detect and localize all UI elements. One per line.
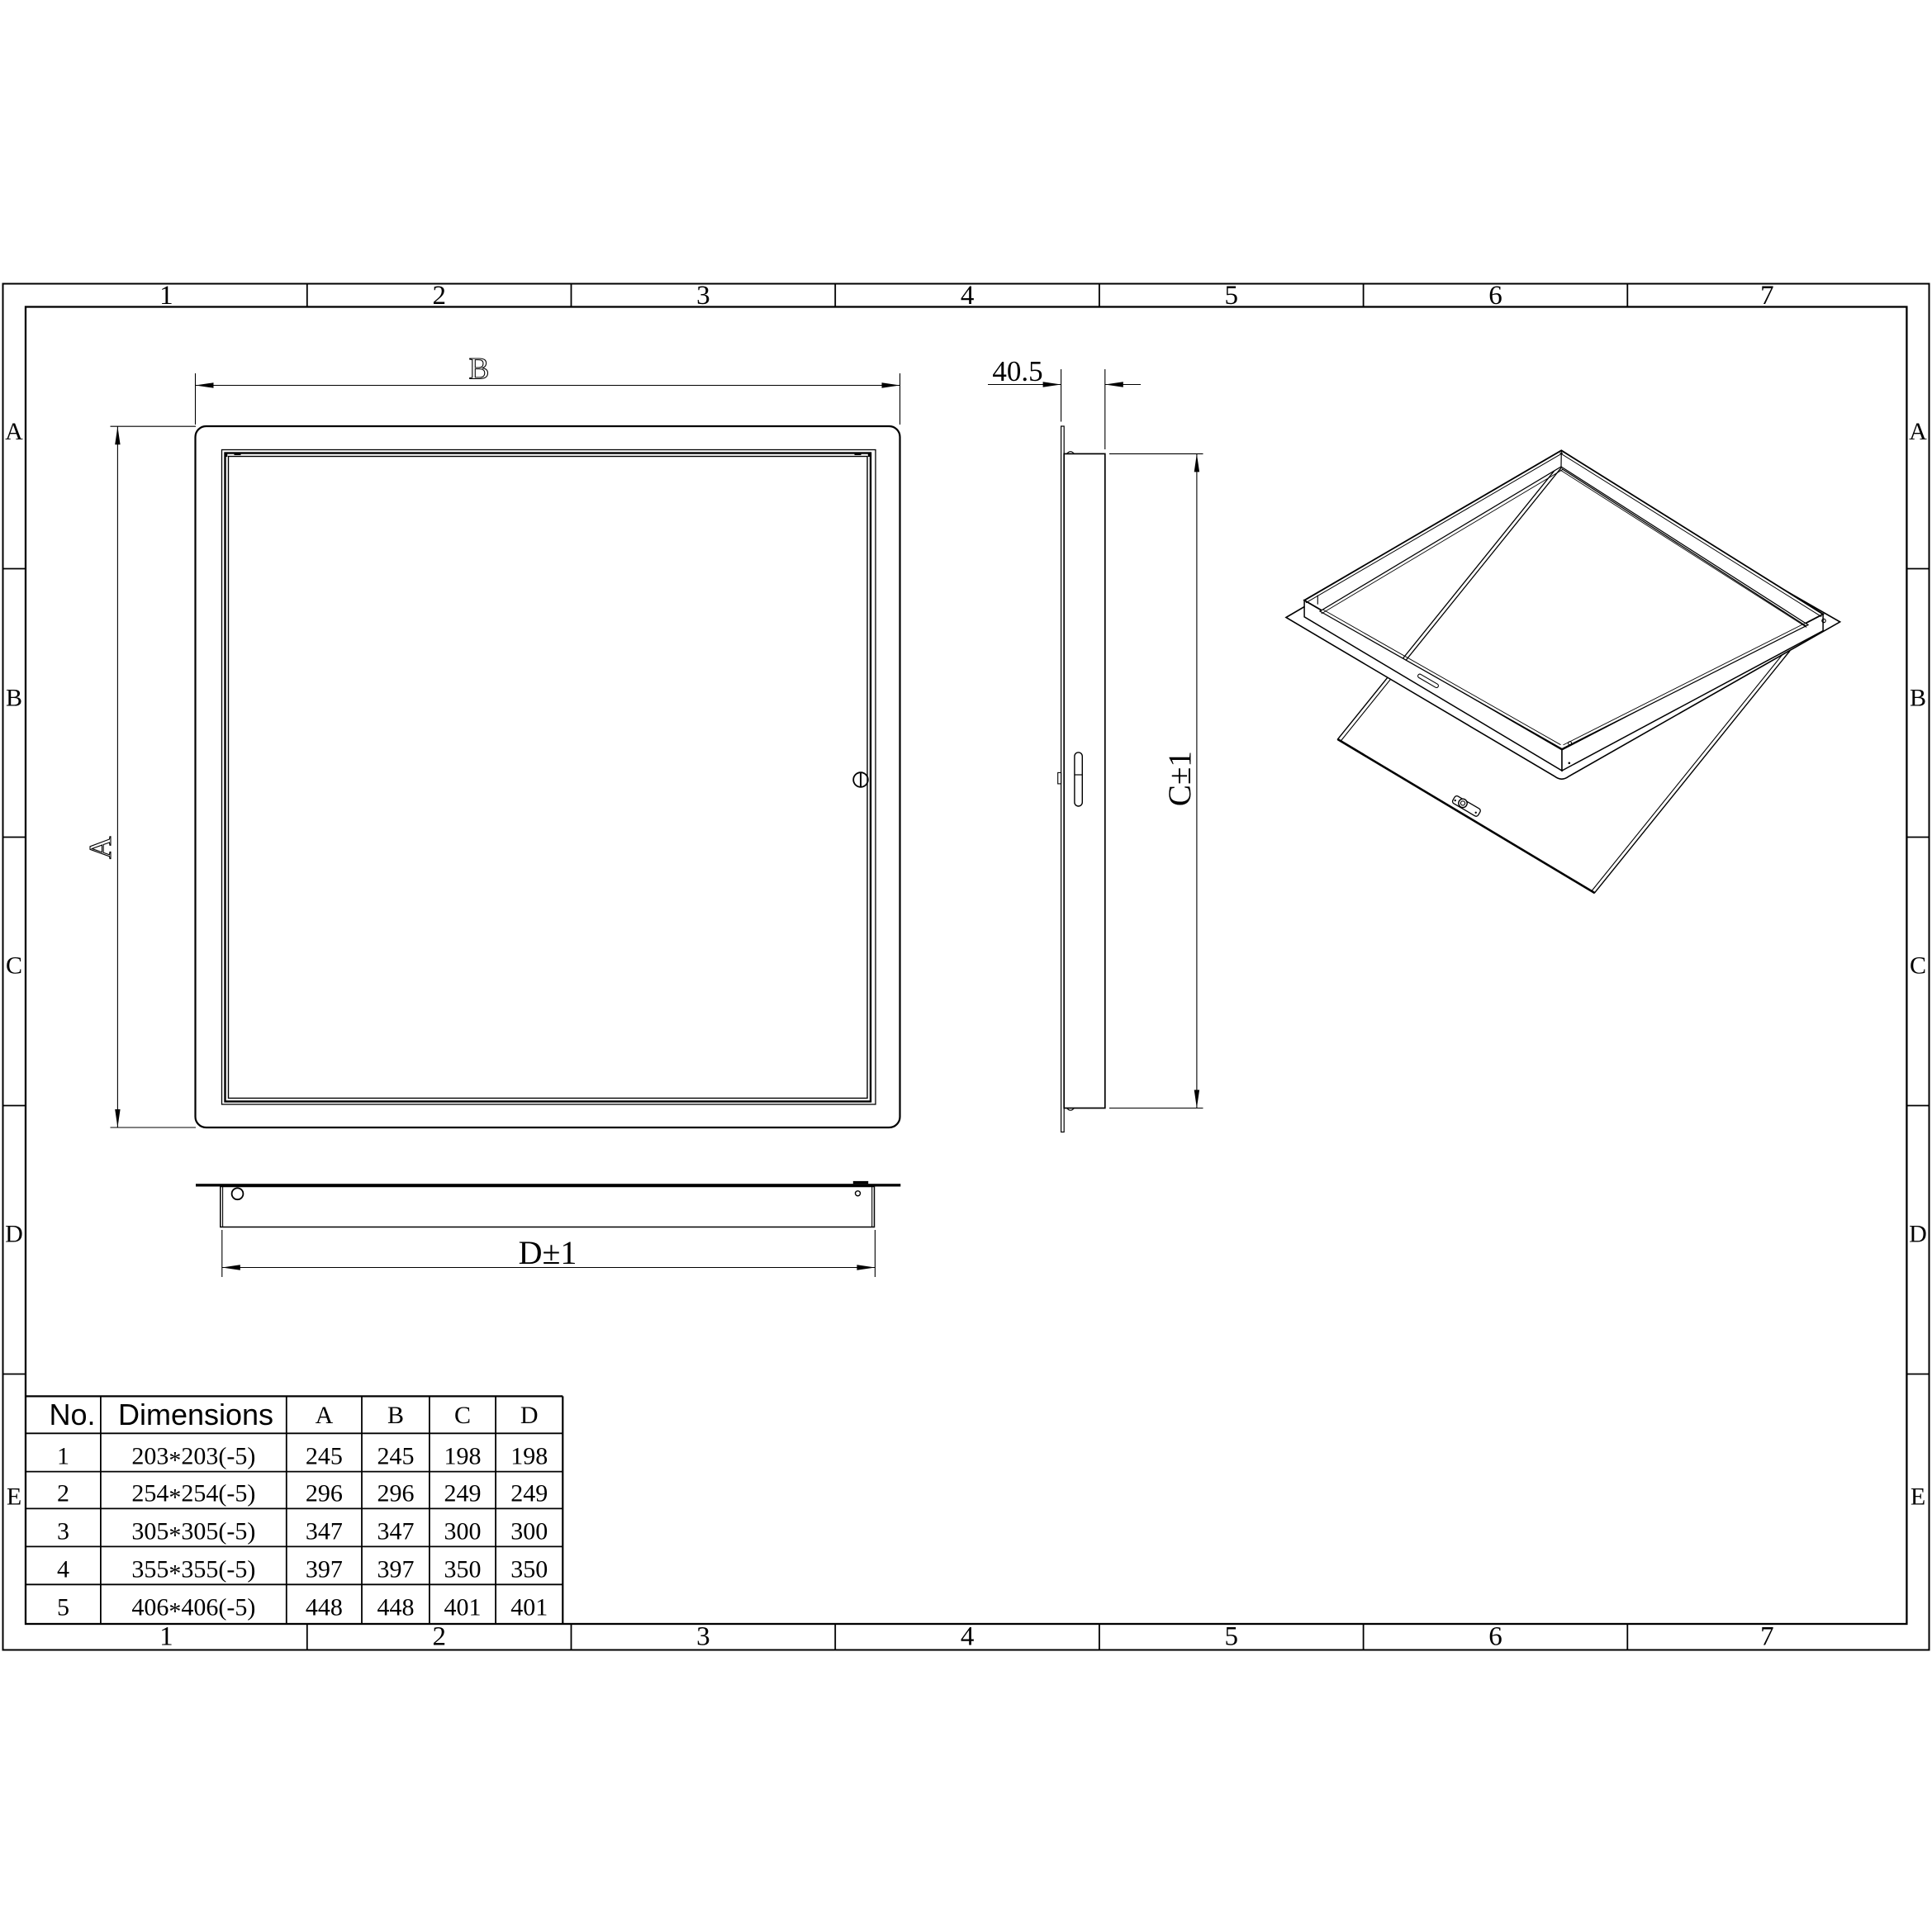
svg-text:3: 3 (696, 1622, 710, 1652)
svg-text:A: A (5, 418, 23, 445)
svg-text:350: 350 (510, 1556, 548, 1583)
svg-text:448: 448 (377, 1594, 415, 1621)
svg-text:198: 198 (510, 1443, 548, 1470)
svg-text:355*355(-5): 355*355(-5) (131, 1556, 255, 1588)
svg-text:249: 249 (510, 1480, 548, 1507)
svg-text:448: 448 (306, 1594, 343, 1621)
svg-text:245: 245 (306, 1443, 343, 1470)
svg-text:A: A (1909, 418, 1927, 445)
svg-text:7: 7 (1760, 1622, 1774, 1652)
svg-text:397: 397 (377, 1556, 415, 1583)
svg-text:397: 397 (306, 1556, 343, 1583)
svg-text:1: 1 (159, 281, 173, 311)
svg-text:300: 300 (510, 1518, 548, 1545)
svg-text:296: 296 (306, 1480, 343, 1507)
svg-text:B: B (6, 685, 22, 712)
svg-text:5: 5 (1225, 281, 1239, 311)
svg-text:C: C (454, 1402, 471, 1429)
svg-text:A: A (316, 1402, 334, 1429)
svg-text:1: 1 (57, 1443, 69, 1470)
svg-text:2: 2 (432, 1622, 446, 1652)
svg-text:D: D (1909, 1221, 1927, 1248)
svg-text:350: 350 (444, 1556, 482, 1583)
svg-text:347: 347 (377, 1518, 415, 1545)
svg-text:A: A (83, 836, 118, 859)
svg-text:3: 3 (57, 1518, 69, 1545)
svg-text:D: D (520, 1402, 539, 1429)
svg-text:D±1: D±1 (519, 1234, 577, 1271)
svg-text:2: 2 (57, 1480, 69, 1507)
svg-text:254*254(-5): 254*254(-5) (131, 1480, 255, 1512)
svg-text:296: 296 (377, 1480, 415, 1507)
svg-text:1: 1 (159, 1622, 173, 1652)
svg-text:305*305(-5): 305*305(-5) (131, 1518, 255, 1550)
svg-text:4: 4 (961, 281, 975, 311)
svg-text:3: 3 (696, 281, 710, 311)
svg-text:E: E (1911, 1483, 1925, 1511)
svg-text:40.5: 40.5 (992, 355, 1042, 387)
svg-text:401: 401 (444, 1594, 482, 1621)
svg-text:D: D (5, 1221, 23, 1248)
svg-text:2: 2 (432, 281, 446, 311)
svg-text:B: B (1910, 685, 1926, 712)
svg-text:Dimensions: Dimensions (118, 1398, 273, 1431)
svg-text:6: 6 (1488, 281, 1502, 311)
svg-text:5: 5 (57, 1594, 69, 1621)
svg-text:C: C (6, 952, 22, 980)
svg-text:203*203(-5): 203*203(-5) (131, 1443, 255, 1474)
svg-text:B: B (469, 353, 490, 387)
svg-text:4: 4 (57, 1556, 69, 1583)
svg-text:249: 249 (444, 1480, 482, 1507)
svg-text:C: C (1910, 952, 1926, 980)
svg-text:No.: No. (49, 1398, 95, 1431)
svg-text:6: 6 (1488, 1622, 1502, 1652)
svg-text:7: 7 (1760, 281, 1774, 311)
svg-text:C±1: C±1 (1162, 751, 1198, 806)
svg-text:B: B (387, 1402, 404, 1429)
svg-text:406*406(-5): 406*406(-5) (131, 1594, 255, 1626)
svg-text:4: 4 (961, 1622, 975, 1652)
svg-text:198: 198 (444, 1443, 482, 1470)
svg-text:401: 401 (510, 1594, 548, 1621)
svg-text:5: 5 (1225, 1622, 1239, 1652)
svg-text:347: 347 (306, 1518, 343, 1545)
svg-text:E: E (7, 1483, 21, 1511)
svg-text:245: 245 (377, 1443, 415, 1470)
svg-text:300: 300 (444, 1518, 482, 1545)
